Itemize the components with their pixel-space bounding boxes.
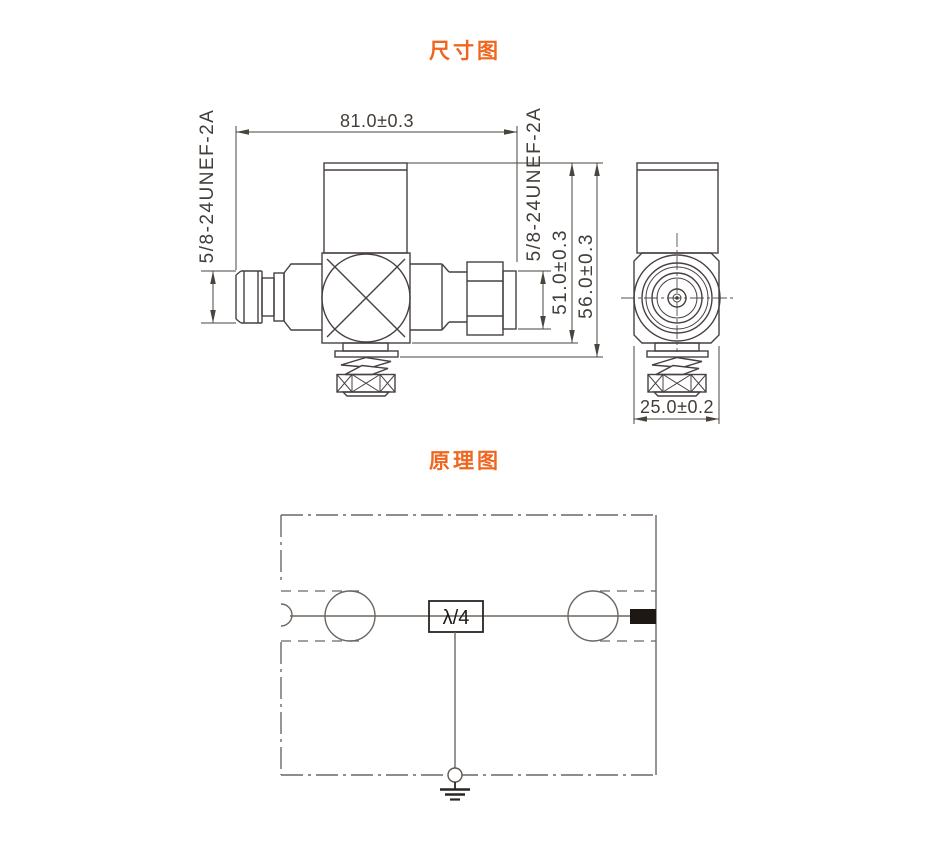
end-view: [621, 163, 733, 396]
dimension-annotations: 81.0±0.3 5/8-24UNEF-2A 5/8-24UNEF-2A 51.…: [197, 107, 719, 424]
earth-ground-icon: [440, 782, 470, 800]
dimension-view-title: 尺寸图: [0, 40, 930, 64]
body-width-label: 25.0±0.2: [640, 397, 714, 417]
overall-height-label: 56.0±0.3: [576, 233, 597, 319]
left-thread-spec-label: 5/8-24UNEF-2A: [197, 109, 218, 264]
schematic-diagram: λ/4: [281, 515, 656, 800]
overall-length-label: 81.0±0.3: [340, 111, 414, 131]
quarter-wave-label: λ/4: [443, 607, 470, 629]
input-port-icon: [281, 604, 292, 626]
technical-drawing-page: 尺寸图 原理图: [0, 0, 930, 846]
center-pin-dot: [675, 296, 679, 300]
drawing-canvas: 81.0±0.3 5/8-24UNEF-2A 5/8-24UNEF-2A 51.…: [0, 0, 930, 846]
output-port-icon: [630, 609, 656, 624]
ground-terminal-circle: [448, 768, 462, 782]
schematic-view-title: 原理图: [0, 450, 930, 474]
right-thread-spec-label: 5/8-24UNEF-2A: [524, 107, 545, 262]
side-view: [236, 163, 516, 396]
body-height-label: 51.0±0.3: [550, 229, 571, 315]
